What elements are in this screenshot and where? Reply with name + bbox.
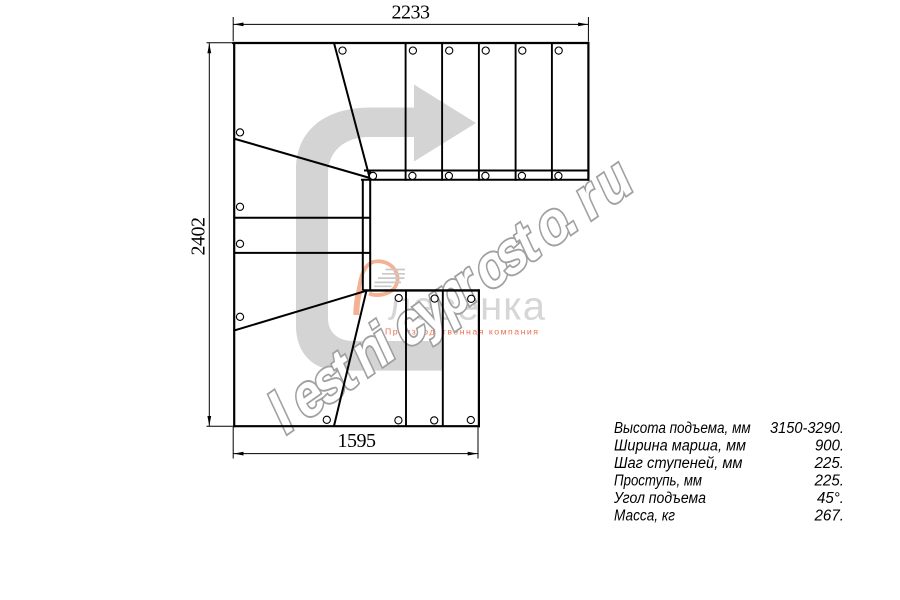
svg-text:Угол подъема: Угол подъема	[613, 490, 706, 507]
svg-text:225.: 225.	[814, 455, 844, 472]
svg-text:225.: 225.	[814, 472, 844, 489]
svg-text:45°.: 45°.	[817, 490, 844, 507]
svg-text:Проступь, мм: Проступь, мм	[614, 472, 702, 489]
svg-text:1595: 1595	[338, 430, 377, 452]
svg-text:Масса, кг: Масса, кг	[614, 507, 675, 524]
svg-text:900.: 900.	[815, 437, 844, 454]
svg-text:Высота подъема, мм: Высота подъема, мм	[614, 420, 751, 437]
svg-text:267.: 267.	[814, 507, 844, 524]
svg-text:Шаг ступеней, мм: Шаг ступеней, мм	[614, 455, 743, 472]
svg-text:Ширина марша, мм: Ширина марша, мм	[614, 437, 746, 454]
svg-text:2402: 2402	[188, 218, 210, 256]
svg-text:2233: 2233	[392, 2, 431, 24]
svg-text:3150-3290.: 3150-3290.	[770, 420, 844, 437]
